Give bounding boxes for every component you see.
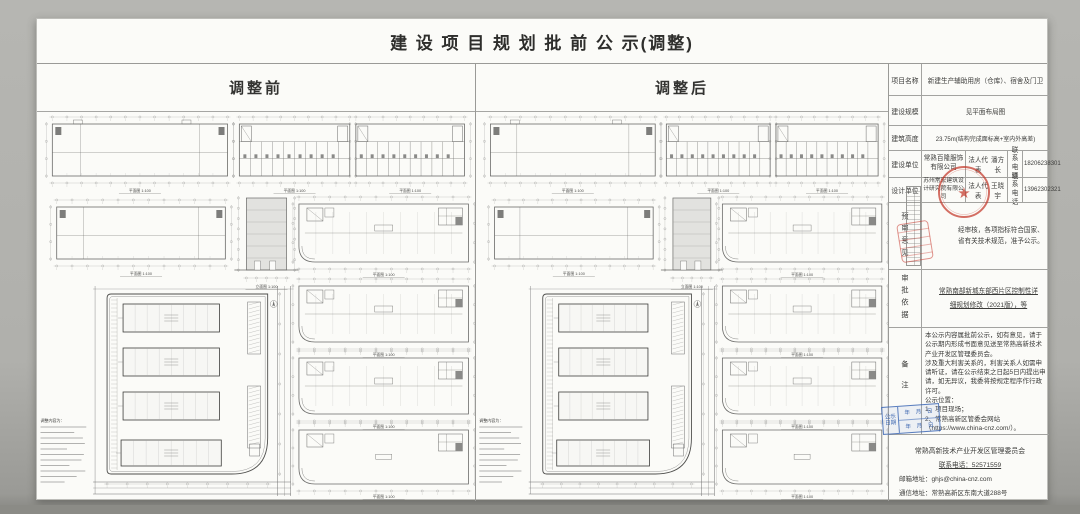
builder-legal-name: 潘方长 xyxy=(989,154,1006,174)
title-bar: 建 设 项 目 规 划 批 前 公 示(调整) xyxy=(37,19,1047,64)
row-height: 建筑高度 23.75m(结构完成面标高+室内外高差) xyxy=(889,125,1049,150)
label-builder: 建设单位 xyxy=(889,151,922,177)
value-review-opinion: 经审核，各项指标符合国家、省有关技术规范，准予公示。 xyxy=(922,203,1049,269)
svg-text:平面图 1:100: 平面图 1:100 xyxy=(707,188,729,193)
builder-legal: 法人代表潘方长 xyxy=(966,151,1008,177)
label-project-name: 项目名称 xyxy=(889,64,922,95)
info-table: 项目名称 新建生产辅助用房（仓库）、宿舍及门卫 建设规模 见平面布局图 建筑高度… xyxy=(889,64,1049,501)
svg-text:平面图 1:100: 平面图 1:100 xyxy=(816,188,838,193)
designer-legal-label: 法人代表 xyxy=(967,180,989,200)
authority-phone: 联系电话：52571559 xyxy=(895,459,1045,469)
authority-name: 常熟高新技术产业开发区管理委员会 xyxy=(895,445,1045,455)
authority-block: 常熟高新技术产业开发区管理委员会 联系电话：52571559 邮箱地址：ghjs… xyxy=(889,435,1049,502)
red-date-stamp xyxy=(896,220,934,264)
svg-text:调整内容为：: 调整内容为： xyxy=(41,417,65,423)
row-builder: 建设单位 常熟百隆服饰有限公司 法人代表潘方长 联系电话 18206238301 xyxy=(889,150,1049,177)
builder-legal-label: 法人代表 xyxy=(967,154,989,174)
main-area: 调整前 平面图 1:100平面图 1:100平面图 1:100平面图 1:100… xyxy=(37,64,1047,501)
svg-text:平面图 1:100: 平面图 1:100 xyxy=(373,272,395,277)
date-row-2: 年 月 日 xyxy=(899,418,940,433)
designer-contact-label: 联系电话 xyxy=(1008,178,1023,202)
publicity-date-stamp: 公示日期 年 月 日 年 月 日 xyxy=(881,403,941,435)
svg-text:平面图 1:100: 平面图 1:100 xyxy=(399,188,421,193)
scanned-announcement: 建 设 项 目 规 划 批 前 公 示(调整) 调整前 平面图 1:100平面图… xyxy=(0,0,1080,514)
panel-before-adjustment: 调整前 平面图 1:100平面图 1:100平面图 1:100平面图 1:100… xyxy=(37,64,476,501)
value-height: 23.75m(结构完成面标高+室内外高差) xyxy=(922,126,1049,150)
scan-shadow xyxy=(0,505,1080,514)
row-footer: 常熟高新技术产业开发区管理委员会 联系电话：52571559 邮箱地址：ghjs… xyxy=(889,434,1049,502)
svg-text:平面图 1:100: 平面图 1:100 xyxy=(129,188,151,193)
svg-text:平面图 1:100: 平面图 1:100 xyxy=(373,494,395,499)
value-approval-basis: 常熟南部新城东部西片区控制性详细规划修改（2021版），等 xyxy=(922,270,1049,327)
row-project-name: 项目名称 新建生产辅助用房（仓库）、宿舍及门卫 xyxy=(889,64,1049,95)
value-remarks: 本公示内容属批前公示，如有意见，请于公示期内形成书面意见送至常熟高新技术产业开发… xyxy=(922,328,1049,434)
page-title: 建 设 项 目 规 划 批 前 公 示(调整) xyxy=(390,29,694,54)
svg-text:立面图 1:100: 立面图 1:100 xyxy=(681,284,703,289)
label-scale: 建设规模 xyxy=(889,96,922,125)
svg-text:平面图 1:100: 平面图 1:100 xyxy=(130,271,152,276)
drawings-after: 平面图 1:100平面图 1:100平面图 1:100平面图 1:100立面图 … xyxy=(476,112,888,502)
document-sheet: 建 设 项 目 规 划 批 前 公 示(调整) 调整前 平面图 1:100平面图… xyxy=(36,18,1048,500)
svg-text:调整内容为：: 调整内容为： xyxy=(479,417,503,423)
svg-text:平面图 1:100: 平面图 1:100 xyxy=(791,424,813,429)
value-scale: 见平面布局图 xyxy=(922,96,1049,125)
builder-phone: 18206238301 xyxy=(1023,151,1062,177)
svg-text:平面图 1:100: 平面图 1:100 xyxy=(563,271,585,276)
svg-text:平面图 1:100: 平面图 1:100 xyxy=(791,272,813,277)
designer-legal-name: 王晓宇 xyxy=(989,180,1006,200)
panel-after-header: 调整后 xyxy=(476,64,888,112)
svg-text:平面图 1:100: 平面图 1:100 xyxy=(284,188,306,193)
designer-phone: 13962302321 xyxy=(1023,178,1062,202)
value-project-name: 新建生产辅助用房（仓库）、宿舍及门卫 xyxy=(922,64,1049,95)
designer-legal: 法人代表王晓宇 xyxy=(966,178,1008,202)
builder-company: 常熟百隆服饰有限公司 xyxy=(922,151,966,177)
label-height: 建筑高度 xyxy=(889,126,922,150)
panel-after-adjustment: 调整后 平面图 1:100平面图 1:100平面图 1:100平面图 1:100… xyxy=(476,64,889,501)
panel-before-header: 调整前 xyxy=(37,64,475,112)
row-approval-basis: 审批依据 常熟南部新城东部西片区控制性详细规划修改（2021版），等 xyxy=(889,269,1049,327)
svg-text:平面图 1:100: 平面图 1:100 xyxy=(791,494,813,499)
publicity-date-fields: 年 月 日 年 月 日 xyxy=(898,404,940,433)
drawings-before: 平面图 1:100平面图 1:100平面图 1:100平面图 1:100立面图 … xyxy=(37,112,475,502)
label-approval-basis: 审批依据 xyxy=(889,270,922,327)
designer-company: 苏州常宏建筑设计研究院有限公司 xyxy=(922,178,966,202)
svg-text:平面图 1:100: 平面图 1:100 xyxy=(562,188,584,193)
authority-address: 通信地址：常熟高新区东南大道288号 xyxy=(895,487,1045,497)
row-scale: 建设规模 见平面布局图 xyxy=(889,95,1049,125)
svg-text:平面图 1:100: 平面图 1:100 xyxy=(791,352,813,357)
svg-text:立面图 1:100: 立面图 1:100 xyxy=(256,284,278,289)
publicity-date-label: 公示日期 xyxy=(882,407,900,434)
authority-email: 邮箱地址：ghjs@china-cnz.com xyxy=(895,473,1045,483)
